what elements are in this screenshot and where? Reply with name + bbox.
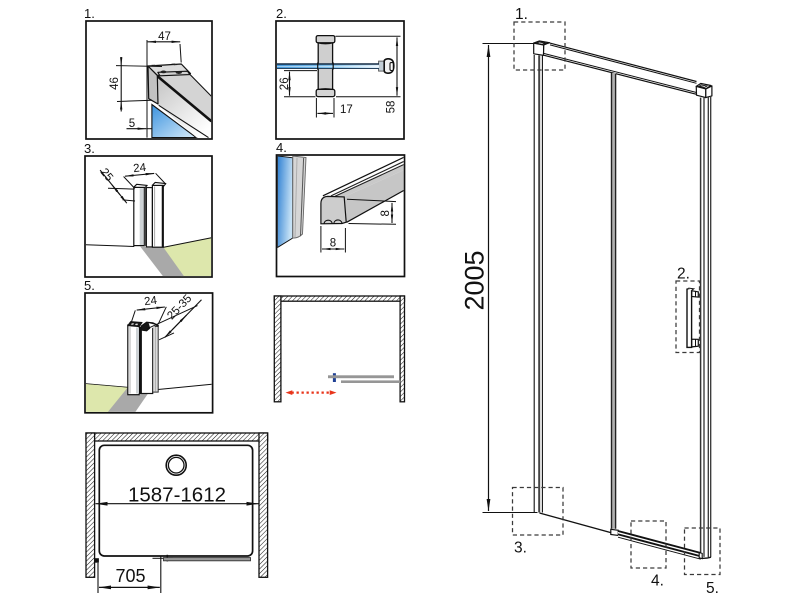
- svg-text:17: 17: [340, 104, 353, 116]
- svg-text:2.: 2.: [276, 6, 287, 21]
- svg-text:8: 8: [330, 238, 336, 250]
- svg-text:8: 8: [380, 210, 392, 216]
- svg-text:47: 47: [158, 31, 171, 43]
- svg-text:46: 46: [109, 77, 121, 90]
- svg-text:4.: 4.: [651, 573, 664, 590]
- svg-text:1587-1612: 1587-1612: [128, 484, 226, 507]
- svg-text:705: 705: [115, 566, 145, 586]
- svg-text:4.: 4.: [276, 140, 287, 155]
- svg-text:24: 24: [133, 162, 148, 175]
- svg-text:3.: 3.: [84, 141, 95, 156]
- svg-text:58: 58: [386, 101, 398, 114]
- svg-text:26: 26: [279, 77, 291, 90]
- svg-text:3.: 3.: [514, 540, 527, 557]
- svg-text:2.: 2.: [677, 266, 690, 283]
- svg-text:5.: 5.: [706, 580, 719, 597]
- svg-text:1.: 1.: [84, 6, 95, 21]
- svg-text:1.: 1.: [515, 6, 528, 23]
- svg-text:5.: 5.: [84, 278, 95, 293]
- svg-text:24: 24: [144, 295, 159, 309]
- svg-text:2005: 2005: [460, 250, 490, 310]
